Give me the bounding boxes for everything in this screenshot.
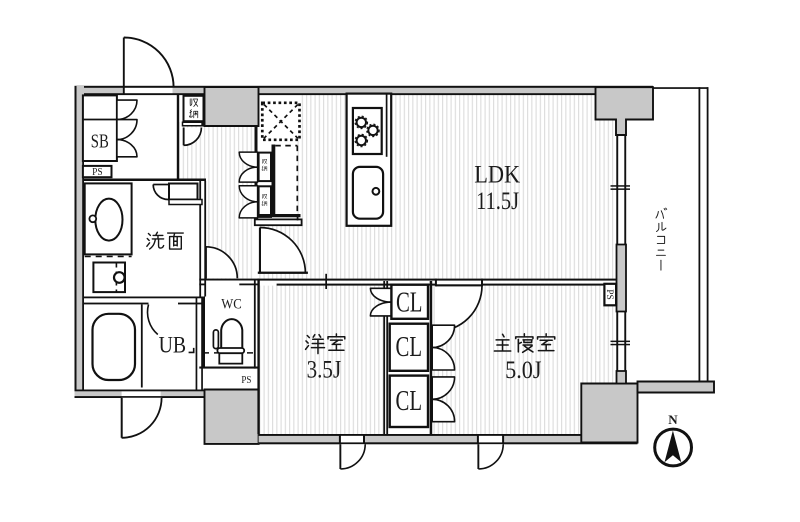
- svg-text:PS: PS: [604, 289, 614, 300]
- svg-text:SB: SB: [91, 132, 109, 153]
- svg-text:CL: CL: [396, 288, 423, 319]
- svg-text:WC: WC: [221, 297, 242, 313]
- svg-text:N: N: [668, 412, 678, 427]
- svg-text:CL: CL: [396, 332, 423, 363]
- svg-text:5.0J: 5.0J: [505, 355, 541, 384]
- svg-text:PS: PS: [92, 167, 103, 178]
- svg-text:UB: UB: [159, 332, 187, 358]
- svg-text:3.5J: 3.5J: [307, 355, 342, 384]
- svg-text:CL: CL: [396, 386, 423, 417]
- svg-text:LDK: LDK: [474, 159, 521, 188]
- svg-text:11.5J: 11.5J: [476, 186, 519, 215]
- svg-text:PS: PS: [241, 375, 251, 386]
